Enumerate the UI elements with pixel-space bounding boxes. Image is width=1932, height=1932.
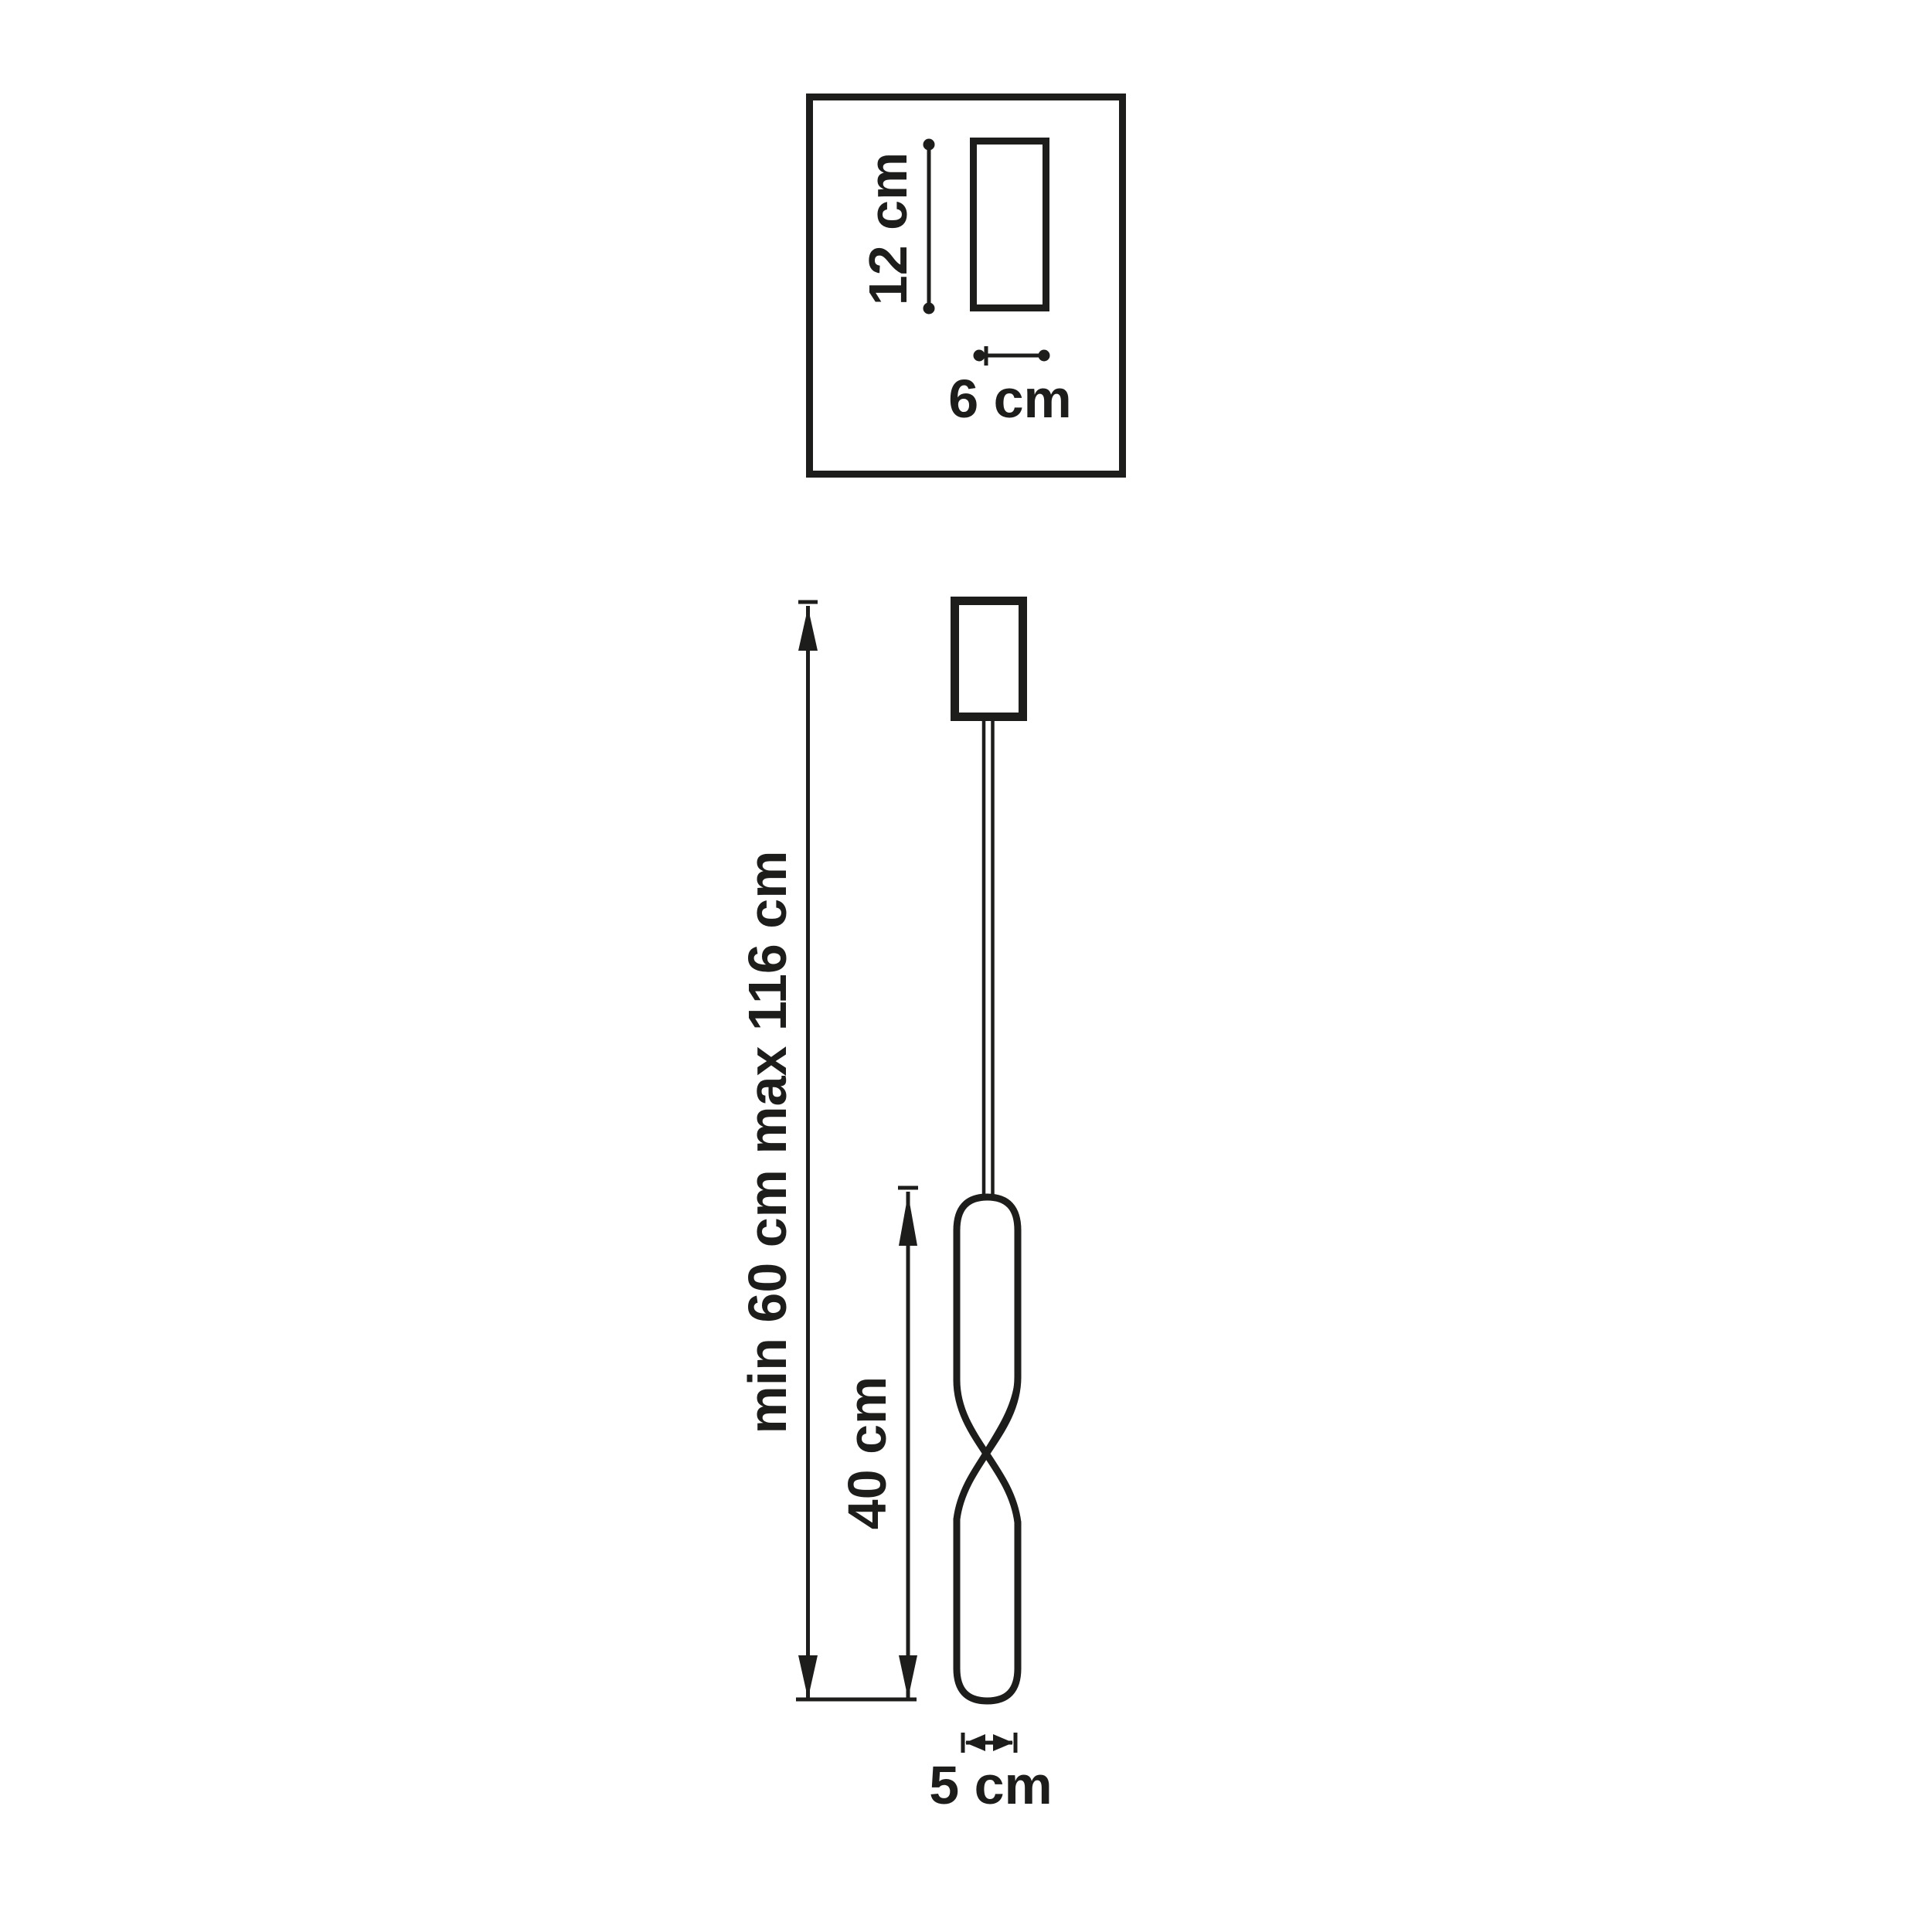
dimension-drawing-page: 12 cm 6 cm min 60 cm max 116 cm 40 cm (0, 0, 1932, 1932)
arrow-up-icon (798, 607, 818, 651)
lamp-body (957, 1197, 1018, 1701)
overall-height-label: min 60 cm max 116 cm (737, 851, 798, 1434)
body-upper-capsule (957, 1197, 1018, 1380)
canopy-top-view-rectangle (974, 141, 1046, 308)
arrow-up-icon (899, 1194, 917, 1246)
height-dimension-line (923, 139, 935, 315)
side-view: min 60 cm max 116 cm 40 cm (737, 601, 1053, 1816)
arrow-down-icon (899, 1655, 917, 1699)
body-diameter-dimension (963, 1733, 1015, 1753)
body-lower-capsule (957, 1519, 1018, 1701)
canopy-rectangle (955, 601, 1023, 717)
suspension-cord (984, 721, 993, 1199)
top-view-width-label: 6 cm (948, 369, 1072, 429)
dimension-dot (923, 303, 935, 315)
body-height-dimension (898, 1188, 918, 1699)
top-view-height-label: 12 cm (858, 152, 918, 305)
dimension-dot (974, 350, 985, 362)
arrow-left-icon (965, 1734, 985, 1751)
arrow-down-icon (798, 1655, 818, 1699)
top-view: 12 cm 6 cm (810, 97, 1123, 474)
overall-height-dimension (798, 602, 818, 1699)
dimension-dot (1039, 350, 1050, 362)
body-diameter-label: 5 cm (929, 1755, 1053, 1815)
arrow-right-icon (993, 1734, 1013, 1751)
pendant-lamp-dimension-drawing: 12 cm 6 cm min 60 cm max 116 cm 40 cm (0, 0, 1932, 1932)
width-dimension-line (974, 346, 1050, 366)
dimension-dot (923, 139, 935, 151)
body-height-label: 40 cm (837, 1376, 897, 1529)
